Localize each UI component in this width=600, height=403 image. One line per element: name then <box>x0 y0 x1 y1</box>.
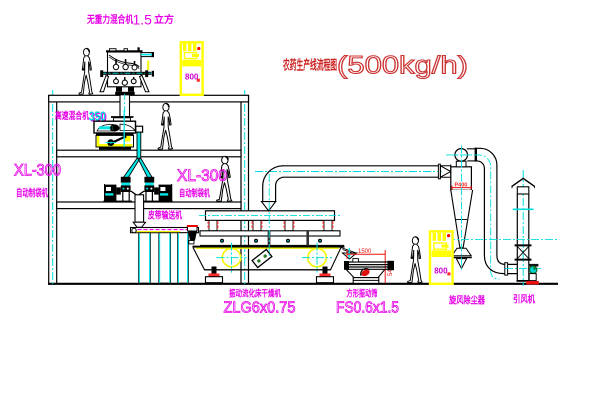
svg-text:农药生产线流程图: 农药生产线流程图 <box>282 58 337 73</box>
svg-text:无重力混合机: 无重力混合机 <box>86 13 133 26</box>
svg-text:方形振动筛: 方形振动筛 <box>347 288 378 299</box>
svg-text:振动流化床干燥机: 振动流化床干燥机 <box>229 288 281 299</box>
svg-text:高速混合机: 高速混合机 <box>55 110 89 122</box>
svg-text:立方: 立方 <box>154 13 174 26</box>
svg-text:旋风除尘器: 旋风除尘器 <box>448 295 485 307</box>
svg-text:1.5: 1.5 <box>133 12 153 28</box>
svg-text:FS0.6x1.5: FS0.6x1.5 <box>336 300 399 317</box>
svg-text:800: 800 <box>434 267 448 276</box>
svg-text:ZLG6x0.75: ZLG6x0.75 <box>224 300 296 317</box>
svg-text:引风机: 引风机 <box>513 294 535 306</box>
svg-text:自动制袋机: 自动制袋机 <box>179 188 210 200</box>
svg-text:XL-300: XL-300 <box>14 162 61 180</box>
svg-text:皮带输送机: 皮带输送机 <box>147 210 182 222</box>
svg-text:XL-300: XL-300 <box>177 167 227 185</box>
svg-text:(500kg/h): (500kg/h) <box>337 52 468 80</box>
svg-text:自动制袋机: 自动制袋机 <box>16 187 48 200</box>
